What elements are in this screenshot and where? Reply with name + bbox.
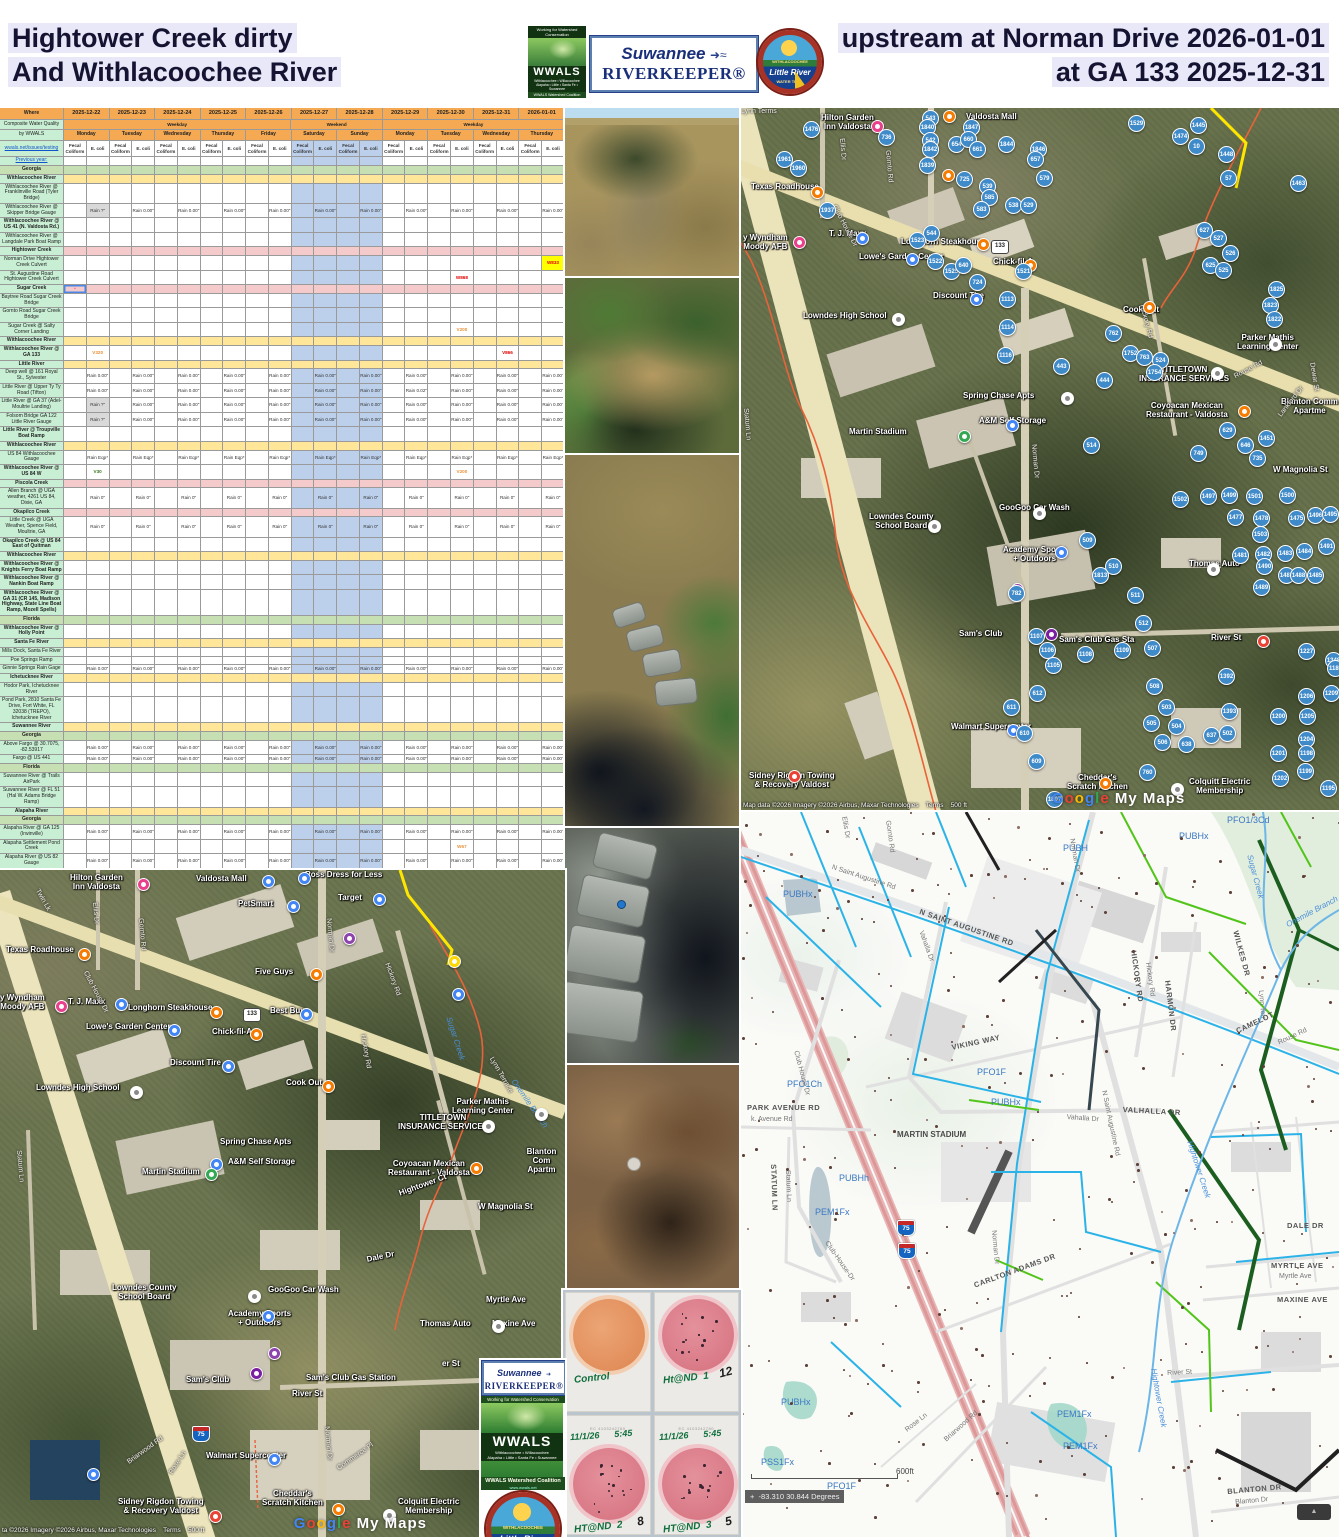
cell[interactable] [178, 625, 201, 640]
cell[interactable] [314, 816, 337, 825]
cell[interactable] [269, 840, 292, 855]
cell[interactable] [519, 442, 542, 451]
cell[interactable] [451, 175, 474, 184]
cell[interactable] [383, 361, 406, 370]
cell[interactable] [383, 465, 406, 480]
cell[interactable]: Rain 0" [223, 488, 246, 508]
cell[interactable] [292, 451, 315, 466]
gray-poi-icon[interactable] [130, 1086, 143, 1099]
cell[interactable] [497, 157, 520, 166]
cell[interactable] [314, 575, 337, 590]
cell[interactable] [292, 732, 315, 741]
cell[interactable] [337, 741, 360, 756]
cell[interactable] [383, 517, 406, 537]
cell[interactable] [314, 732, 337, 741]
cell[interactable] [383, 451, 406, 466]
bank-poi-icon[interactable] [928, 520, 941, 533]
cell[interactable] [314, 639, 337, 648]
cell[interactable] [497, 657, 520, 666]
cell[interactable] [110, 575, 133, 590]
cell[interactable]: • [64, 285, 87, 294]
cell[interactable] [337, 166, 360, 175]
cell[interactable]: Rain ?" [87, 398, 110, 413]
cell[interactable] [337, 442, 360, 451]
cell[interactable]: Rain 0.00" [87, 665, 110, 674]
cell[interactable] [292, 157, 315, 166]
map-marker[interactable]: 583 [973, 201, 990, 218]
cell[interactable] [519, 480, 542, 489]
cell[interactable] [246, 538, 269, 553]
map-marker[interactable]: 1114 [999, 319, 1016, 336]
cell[interactable] [64, 442, 87, 451]
cell[interactable]: V320 [87, 346, 110, 361]
cell[interactable] [155, 166, 178, 175]
cell[interactable] [360, 294, 383, 309]
cell[interactable] [337, 285, 360, 294]
cell[interactable] [223, 346, 246, 361]
cell[interactable] [519, 648, 542, 657]
cell[interactable] [223, 697, 246, 723]
cell[interactable] [428, 361, 451, 370]
cell[interactable] [497, 166, 520, 175]
cell[interactable] [132, 175, 155, 184]
cell[interactable] [155, 184, 178, 204]
cell[interactable] [337, 175, 360, 184]
cell[interactable] [519, 854, 542, 869]
shop-poi-icon[interactable] [300, 1008, 313, 1021]
map-marker[interactable]: 1497 [1200, 488, 1217, 505]
cell[interactable] [428, 285, 451, 294]
cell[interactable]: Rain 0.00" [314, 825, 337, 840]
cell[interactable]: Rain 0.00" [178, 369, 201, 384]
cell[interactable] [428, 854, 451, 869]
cell[interactable] [519, 271, 542, 286]
table-link[interactable]: wwals.net/issues/testing [0, 141, 64, 157]
cell[interactable] [405, 337, 428, 346]
cell[interactable] [405, 465, 428, 480]
cell[interactable] [405, 723, 428, 732]
cell[interactable] [383, 755, 406, 764]
cell[interactable] [428, 755, 451, 764]
cell[interactable] [155, 323, 178, 338]
cell[interactable] [155, 157, 178, 166]
cell[interactable] [269, 552, 292, 561]
cell[interactable] [474, 665, 497, 674]
cell[interactable] [201, 465, 224, 480]
cell[interactable] [497, 639, 520, 648]
cell[interactable] [451, 166, 474, 175]
cell[interactable] [337, 665, 360, 674]
map-marker[interactable]: 1491 [1318, 538, 1335, 555]
cell[interactable] [292, 825, 315, 840]
cell[interactable]: Rain 0.00" [497, 398, 520, 413]
cell[interactable] [64, 465, 87, 480]
cell[interactable] [542, 247, 565, 256]
cell[interactable] [314, 256, 337, 271]
cell[interactable] [110, 451, 133, 466]
cell[interactable] [428, 561, 451, 576]
cell[interactable] [269, 575, 292, 590]
cell[interactable] [314, 616, 337, 625]
cell[interactable] [314, 184, 337, 204]
cell[interactable]: Rain 0.00" [87, 384, 110, 399]
cell[interactable] [246, 175, 269, 184]
purple-poi-icon[interactable] [268, 1347, 281, 1360]
cell[interactable] [155, 509, 178, 518]
food-poi-icon[interactable] [942, 169, 955, 182]
cell[interactable] [451, 683, 474, 698]
cell[interactable] [519, 294, 542, 309]
map-marker[interactable]: 509 [1079, 532, 1096, 549]
cell[interactable] [542, 308, 565, 323]
cell[interactable] [292, 442, 315, 451]
map-marker[interactable]: 444 [1096, 372, 1113, 389]
cell[interactable] [428, 648, 451, 657]
cell[interactable] [542, 538, 565, 553]
cell[interactable] [246, 294, 269, 309]
cell[interactable] [64, 616, 87, 625]
cell[interactable] [246, 755, 269, 764]
map-marker[interactable]: 1201 [1270, 745, 1287, 762]
cell[interactable]: Rain 0.00" [314, 741, 337, 756]
cell[interactable] [110, 616, 133, 625]
map-marker[interactable]: 1825 [1268, 281, 1285, 298]
cell[interactable] [178, 764, 201, 773]
cell[interactable] [155, 247, 178, 256]
cell[interactable] [519, 741, 542, 756]
cell[interactable] [246, 369, 269, 384]
cell[interactable] [87, 773, 110, 788]
cell[interactable] [519, 398, 542, 413]
cell[interactable] [269, 816, 292, 825]
cell[interactable] [428, 616, 451, 625]
cell[interactable] [292, 465, 315, 480]
cell[interactable] [64, 697, 87, 723]
cell[interactable] [360, 247, 383, 256]
cell[interactable] [314, 166, 337, 175]
cell[interactable] [451, 361, 474, 370]
cell[interactable] [223, 787, 246, 807]
cell[interactable] [428, 384, 451, 399]
cell[interactable] [542, 639, 565, 648]
cell[interactable] [383, 184, 406, 204]
cell[interactable] [542, 787, 565, 807]
cell[interactable] [269, 285, 292, 294]
cell[interactable] [292, 575, 315, 590]
cell[interactable] [314, 625, 337, 640]
date-header[interactable]: 2025-12-22 [64, 108, 110, 120]
cell[interactable] [474, 384, 497, 399]
cell[interactable]: Rain 0" [542, 488, 565, 508]
cell[interactable] [542, 552, 565, 561]
cell[interactable] [201, 157, 224, 166]
cell[interactable] [383, 808, 406, 817]
food-poi-icon[interactable] [322, 1080, 335, 1093]
cell[interactable]: Rain Eqp* [314, 451, 337, 466]
cell[interactable] [269, 616, 292, 625]
cell[interactable] [201, 308, 224, 323]
cell[interactable] [64, 538, 87, 553]
cell[interactable] [223, 218, 246, 233]
cell[interactable]: Rain 0.00" [542, 204, 565, 219]
cell[interactable] [497, 256, 520, 271]
cell[interactable] [155, 665, 178, 674]
cell[interactable] [519, 247, 542, 256]
cell[interactable] [474, 639, 497, 648]
cell[interactable] [292, 674, 315, 683]
cell[interactable] [87, 538, 110, 553]
cell[interactable] [132, 323, 155, 338]
cell[interactable] [292, 233, 315, 248]
cell[interactable] [155, 384, 178, 399]
cell[interactable] [201, 247, 224, 256]
cell[interactable] [383, 674, 406, 683]
cell[interactable] [132, 561, 155, 576]
cell[interactable] [87, 575, 110, 590]
cell[interactable] [201, 346, 224, 361]
cell[interactable] [451, 184, 474, 204]
map-marker[interactable]: 527 [1210, 230, 1227, 247]
cell[interactable] [383, 369, 406, 384]
cell[interactable] [292, 361, 315, 370]
cell[interactable] [474, 575, 497, 590]
cell[interactable] [337, 271, 360, 286]
cell[interactable] [155, 517, 178, 537]
cell[interactable] [87, 323, 110, 338]
cell[interactable] [178, 657, 201, 666]
cell[interactable] [497, 294, 520, 309]
cell[interactable] [223, 509, 246, 518]
cell[interactable] [223, 175, 246, 184]
cell[interactable] [519, 625, 542, 640]
cell[interactable] [132, 787, 155, 807]
cell[interactable] [405, 590, 428, 616]
cell[interactable] [155, 451, 178, 466]
cell[interactable] [87, 218, 110, 233]
cell[interactable] [474, 157, 497, 166]
cell[interactable] [542, 732, 565, 741]
cell[interactable] [383, 561, 406, 576]
cell[interactable] [246, 413, 269, 428]
cell[interactable] [405, 427, 428, 442]
cell[interactable] [110, 697, 133, 723]
cell[interactable] [542, 674, 565, 683]
cell[interactable] [87, 787, 110, 807]
cell[interactable] [178, 509, 201, 518]
cell[interactable]: Rain 0" [542, 517, 565, 537]
cell[interactable] [337, 854, 360, 869]
cell[interactable] [497, 323, 520, 338]
cell[interactable] [451, 233, 474, 248]
cell[interactable] [519, 157, 542, 166]
cell[interactable] [87, 674, 110, 683]
cell[interactable] [223, 816, 246, 825]
cell[interactable] [246, 323, 269, 338]
cell[interactable] [64, 657, 87, 666]
map-marker[interactable]: 1503 [1252, 526, 1269, 543]
cell[interactable] [87, 639, 110, 648]
cell[interactable]: Rain 0.00" [178, 755, 201, 764]
cell[interactable] [474, 755, 497, 764]
cell[interactable]: Rain 0.00" [269, 741, 292, 756]
cell[interactable] [337, 517, 360, 537]
gray-poi-icon[interactable] [535, 1108, 548, 1121]
cell[interactable] [178, 294, 201, 309]
cell[interactable] [178, 808, 201, 817]
cell[interactable] [64, 256, 87, 271]
cell[interactable] [428, 590, 451, 616]
cell[interactable] [132, 427, 155, 442]
cell[interactable] [428, 369, 451, 384]
cell[interactable] [405, 657, 428, 666]
cell[interactable] [201, 488, 224, 508]
cell[interactable] [405, 787, 428, 807]
cell[interactable] [497, 509, 520, 518]
cell[interactable] [360, 648, 383, 657]
cell[interactable] [337, 697, 360, 723]
cell[interactable] [110, 517, 133, 537]
cell[interactable] [269, 561, 292, 576]
cell[interactable] [405, 157, 428, 166]
cell[interactable] [383, 683, 406, 698]
cell[interactable] [383, 398, 406, 413]
cell[interactable] [405, 561, 428, 576]
cell[interactable] [383, 218, 406, 233]
cell[interactable] [110, 384, 133, 399]
map-marker[interactable]: 1754 [1146, 364, 1163, 381]
red-poi-icon[interactable] [209, 1510, 222, 1523]
cell[interactable] [519, 384, 542, 399]
cell[interactable] [201, 808, 224, 817]
cell[interactable] [474, 175, 497, 184]
cell[interactable] [519, 755, 542, 764]
cell[interactable] [132, 256, 155, 271]
cell[interactable]: Rain 0" [269, 517, 292, 537]
cell[interactable] [542, 590, 565, 616]
map-marker[interactable]: 1105 [1045, 657, 1062, 674]
cell[interactable] [246, 488, 269, 508]
cell[interactable] [246, 723, 269, 732]
cell[interactable] [474, 590, 497, 616]
green-poi-icon[interactable] [205, 1168, 218, 1181]
cell[interactable] [383, 773, 406, 788]
cell[interactable] [223, 657, 246, 666]
cell[interactable]: Rain 0.00" [178, 665, 201, 674]
cell[interactable] [64, 764, 87, 773]
cell[interactable] [132, 616, 155, 625]
cell[interactable] [269, 442, 292, 451]
cell[interactable]: Rain 0.00" [360, 204, 383, 219]
map-marker[interactable]: 1205 [1299, 708, 1316, 725]
cell[interactable] [383, 816, 406, 825]
cell[interactable] [451, 509, 474, 518]
cell[interactable] [383, 442, 406, 451]
cell[interactable] [292, 665, 315, 674]
cell[interactable] [360, 674, 383, 683]
cell[interactable] [246, 285, 269, 294]
cell[interactable] [201, 175, 224, 184]
cell[interactable] [519, 590, 542, 616]
cell[interactable] [497, 787, 520, 807]
cell[interactable] [292, 369, 315, 384]
binoc-poi-icon[interactable] [343, 932, 356, 945]
cell[interactable] [337, 764, 360, 773]
cell[interactable] [155, 256, 178, 271]
cell[interactable] [155, 755, 178, 764]
cell[interactable] [497, 337, 520, 346]
cell[interactable] [474, 184, 497, 204]
cell[interactable] [155, 175, 178, 184]
cell[interactable]: Rain 0" [178, 488, 201, 508]
cell[interactable] [110, 285, 133, 294]
cell[interactable] [246, 625, 269, 640]
cell[interactable] [451, 697, 474, 723]
cell[interactable] [64, 413, 87, 428]
cell[interactable] [519, 175, 542, 184]
ypin-poi-icon[interactable] [448, 955, 461, 968]
cell[interactable]: Rain Eqp* [497, 451, 520, 466]
cell[interactable] [223, 166, 246, 175]
cell[interactable] [451, 648, 474, 657]
cell[interactable] [201, 369, 224, 384]
cell[interactable] [269, 764, 292, 773]
cell[interactable] [155, 294, 178, 309]
cell[interactable] [201, 233, 224, 248]
cell[interactable] [542, 233, 565, 248]
cell[interactable] [110, 657, 133, 666]
cell[interactable] [360, 256, 383, 271]
cell[interactable]: Rain 0.00" [542, 854, 565, 869]
cell[interactable] [497, 816, 520, 825]
cell[interactable] [474, 427, 497, 442]
cell[interactable] [519, 825, 542, 840]
cell[interactable] [64, 625, 87, 640]
cell[interactable] [132, 294, 155, 309]
cell[interactable] [383, 294, 406, 309]
cell[interactable] [474, 552, 497, 561]
map-marker[interactable]: 504 [1168, 718, 1185, 735]
cell[interactable] [405, 808, 428, 817]
cell[interactable] [246, 256, 269, 271]
cell[interactable] [337, 384, 360, 399]
cell[interactable]: Rain 0" [223, 517, 246, 537]
cell[interactable] [474, 816, 497, 825]
cell[interactable] [64, 854, 87, 869]
cell[interactable] [497, 465, 520, 480]
cell[interactable] [405, 218, 428, 233]
cell[interactable] [451, 816, 474, 825]
cell[interactable] [337, 369, 360, 384]
cell[interactable] [474, 480, 497, 489]
cell[interactable] [451, 247, 474, 256]
cell[interactable] [542, 575, 565, 590]
cell[interactable] [246, 271, 269, 286]
cell[interactable] [474, 488, 497, 508]
cell[interactable] [87, 285, 110, 294]
cell[interactable] [542, 480, 565, 489]
cell[interactable] [383, 840, 406, 855]
cell[interactable] [155, 616, 178, 625]
cell[interactable] [314, 538, 337, 553]
cell[interactable] [337, 657, 360, 666]
cell[interactable]: Rain 0.00" [451, 665, 474, 674]
cell[interactable] [542, 271, 565, 286]
map-marker[interactable]: 505 [1143, 715, 1160, 732]
cell[interactable] [223, 590, 246, 616]
cell[interactable] [383, 509, 406, 518]
cell[interactable] [428, 398, 451, 413]
cell[interactable] [428, 465, 451, 480]
